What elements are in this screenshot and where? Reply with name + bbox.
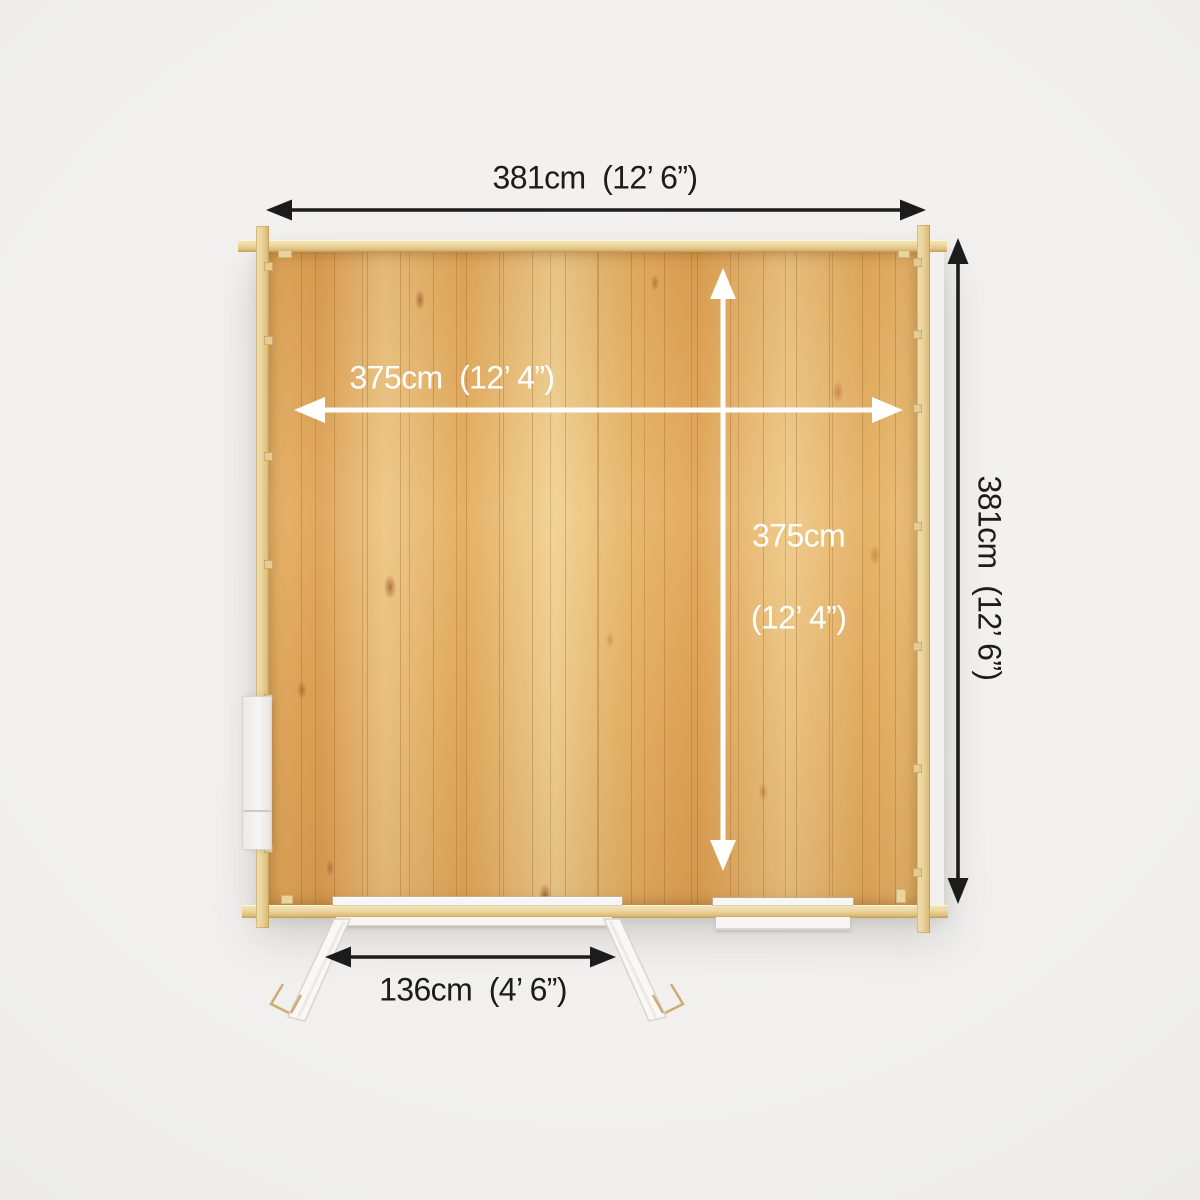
log-joint-notch — [264, 452, 273, 461]
log-joint-notch — [264, 262, 273, 271]
door-threshold — [333, 897, 622, 905]
left-window — [243, 697, 271, 849]
internal-width-label: 375cm (12’ 4”) — [349, 360, 554, 397]
log-joint-notch — [264, 560, 273, 569]
log-corner-tab — [898, 250, 910, 258]
log-joint-notch — [913, 764, 922, 773]
door-width-label: 136cm (4’ 6”) — [379, 972, 567, 1009]
log-corner-tab — [281, 895, 293, 904]
log-joint-notch — [913, 868, 922, 877]
log-corner-tab — [278, 250, 292, 258]
log-joint-notch — [913, 330, 922, 339]
log-joint-notch — [913, 404, 922, 413]
product-diagram-canvas: 381cm (12’ 6”) 375cm (12’ 4”) 375cm (12’… — [0, 0, 1200, 1200]
door-frame-strip — [336, 917, 612, 926]
internal-depth-label-line2: (12’ 4”) — [751, 600, 846, 636]
internal-depth-label: 375cm (12’ 4”) — [718, 475, 847, 680]
overall-depth-label: 381cm (12’ 6”) — [971, 475, 1008, 680]
front-window-sill — [716, 917, 850, 930]
log-joint-notch — [913, 522, 922, 531]
log-joint-notch — [264, 336, 273, 345]
internal-depth-label-line1: 375cm — [752, 518, 845, 554]
log-corner-tab — [896, 889, 906, 903]
overall-width-label: 381cm (12’ 6”) — [492, 160, 697, 197]
log-joint-notch — [913, 642, 922, 651]
front-window-head — [713, 898, 853, 905]
log-joint-notch — [913, 258, 922, 267]
